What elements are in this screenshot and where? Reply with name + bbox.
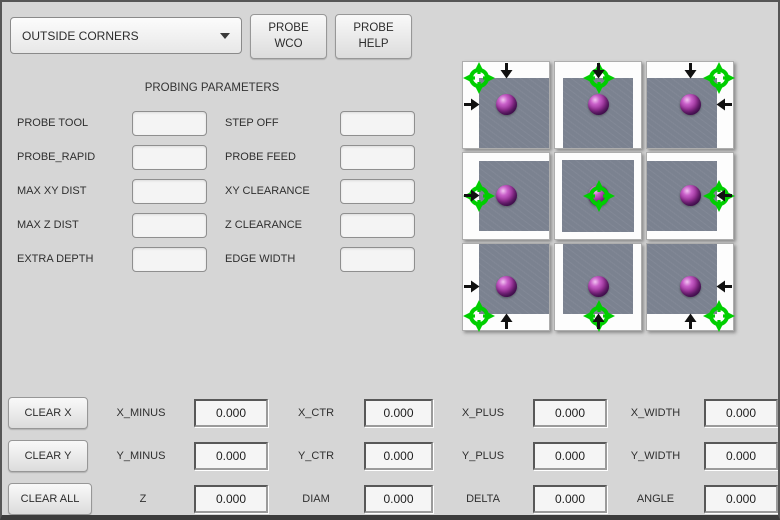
probe-direction-bottom-left-button[interactable] — [462, 243, 550, 331]
param-input-z-clearance[interactable] — [340, 213, 415, 238]
target-crosshair-icon — [463, 62, 495, 94]
result-value-y-width: 0.000 — [704, 442, 778, 470]
arrow-right-icon — [464, 280, 480, 293]
probe-tip-sphere-icon — [588, 276, 609, 297]
probe-mode-dropdown[interactable]: OUTSIDE CORNERS — [10, 17, 242, 54]
probe-tip-sphere-icon — [680, 94, 701, 115]
param-label-max-z-dist: MAX Z DIST — [17, 219, 132, 231]
param-row: MAX Z DISTZ CLEARANCE — [2, 208, 422, 242]
probe-tip-sphere-icon — [496, 185, 517, 206]
result-value-x-plus: 0.000 — [533, 399, 607, 427]
result-value-angle: 0.000 — [704, 485, 778, 513]
target-crosshair-icon — [703, 300, 735, 332]
clear-x-button[interactable]: CLEAR X — [8, 397, 88, 429]
param-row: MAX XY DISTXY CLEARANCE — [2, 174, 422, 208]
arrow-up-icon — [684, 313, 697, 329]
result-label-delta: DELTA — [433, 493, 533, 505]
result-label-x-plus: X_PLUS — [433, 407, 533, 419]
dropdown-arrow-icon — [220, 33, 230, 39]
probe-direction-bottom-right-button[interactable] — [646, 243, 734, 331]
param-input-max-xy-dist[interactable] — [132, 179, 207, 204]
param-row: EXTRA DEPTHEDGE WIDTH — [2, 242, 422, 276]
result-label-y-minus: Y_MINUS — [88, 450, 194, 462]
probe-direction-top-center-button[interactable] — [554, 61, 642, 149]
probe-wco-label-line2: WCO — [274, 37, 302, 53]
target-crosshair-icon — [463, 300, 495, 332]
param-input-edge-width[interactable] — [340, 247, 415, 272]
arrow-down-icon — [500, 63, 513, 79]
probe-direction-middle-left-button[interactable] — [462, 152, 550, 240]
param-label-xy-clearance: XY CLEARANCE — [225, 185, 340, 197]
probe-screen-window: OUTSIDE CORNERS PROBE WCO PROBE HELP PRO… — [0, 0, 780, 520]
results-row-1: CLEAR XX_MINUS0.000X_CTR0.000X_PLUS0.000… — [2, 396, 778, 430]
result-label-diam: DIAM — [268, 493, 364, 505]
param-label-z-clearance: Z CLEARANCE — [225, 219, 340, 231]
probe-help-label-line1: PROBE — [353, 21, 393, 37]
param-label-edge-width: EDGE WIDTH — [225, 253, 340, 265]
result-value-y-ctr: 0.000 — [364, 442, 433, 470]
param-label-probe-feed: PROBE FEED — [225, 151, 340, 163]
param-row: PROBE TOOLSTEP OFF — [2, 106, 422, 140]
probe-mode-selected-value: OUTSIDE CORNERS — [22, 29, 139, 43]
probe-position-grid — [462, 61, 734, 331]
probe-wco-label-line1: PROBE — [268, 21, 308, 37]
arrow-up-icon — [500, 313, 513, 329]
param-label-step-off: STEP OFF — [225, 117, 340, 129]
arrow-left-icon — [716, 189, 732, 202]
probe-direction-bottom-center-button[interactable] — [554, 243, 642, 331]
probing-parameters-title: PROBING PARAMETERS — [2, 82, 422, 94]
result-value-y-plus: 0.000 — [533, 442, 607, 470]
arrow-right-icon — [464, 98, 480, 111]
arrow-left-icon — [716, 98, 732, 111]
probe-direction-middle-right-button[interactable] — [646, 152, 734, 240]
result-label-y-plus: Y_PLUS — [433, 450, 533, 462]
probe-tip-sphere-icon — [496, 276, 517, 297]
arrow-down-icon — [592, 63, 605, 79]
arrow-down-icon — [684, 63, 697, 79]
probing-parameters-form: PROBE TOOLSTEP OFFPROBE_RAPIDPROBE FEEDM… — [2, 106, 422, 276]
param-label-max-xy-dist: MAX XY DIST — [17, 185, 132, 197]
param-label-extra-depth: EXTRA DEPTH — [17, 253, 132, 265]
param-input-probe-rapid[interactable] — [132, 145, 207, 170]
probe-direction-center-button[interactable] — [554, 152, 642, 240]
param-input-probe-feed[interactable] — [340, 145, 415, 170]
param-label-probe-rapid: PROBE_RAPID — [17, 151, 132, 163]
result-value-delta: 0.000 — [533, 485, 607, 513]
result-label-angle: ANGLE — [607, 493, 704, 505]
probe-wco-button[interactable]: PROBE WCO — [250, 14, 327, 59]
probe-help-label-line2: HELP — [358, 37, 388, 53]
result-value-x-minus: 0.000 — [194, 399, 268, 427]
param-input-max-z-dist[interactable] — [132, 213, 207, 238]
param-input-extra-depth[interactable] — [132, 247, 207, 272]
param-input-xy-clearance[interactable] — [340, 179, 415, 204]
result-label-x-ctr: X_CTR — [268, 407, 364, 419]
results-row-2: CLEAR YY_MINUS0.000Y_CTR0.000Y_PLUS0.000… — [2, 439, 778, 473]
result-value-y-minus: 0.000 — [194, 442, 268, 470]
result-value-x-ctr: 0.000 — [364, 399, 433, 427]
param-input-step-off[interactable] — [340, 111, 415, 136]
probe-tip-sphere-icon — [680, 276, 701, 297]
target-crosshair-icon — [583, 180, 615, 212]
param-label-probe-tool: PROBE TOOL — [17, 117, 132, 129]
probe-tip-sphere-icon — [496, 94, 517, 115]
result-value-z: 0.000 — [194, 485, 268, 513]
probe-tip-sphere-icon — [588, 94, 609, 115]
result-label-y-ctr: Y_CTR — [268, 450, 364, 462]
arrow-left-icon — [716, 280, 732, 293]
result-value-diam: 0.000 — [364, 485, 433, 513]
result-label-z: Z — [92, 493, 194, 505]
result-label-y-width: Y_WIDTH — [607, 450, 704, 462]
results-row-3: CLEAR ALLZ0.000DIAM0.000DELTA0.000ANGLE0… — [2, 482, 778, 516]
result-label-x-minus: X_MINUS — [88, 407, 194, 419]
result-label-x-width: X_WIDTH — [607, 407, 704, 419]
param-row: PROBE_RAPIDPROBE FEED — [2, 140, 422, 174]
probe-tip-sphere-icon — [680, 185, 701, 206]
target-crosshair-icon — [703, 62, 735, 94]
probe-help-button[interactable]: PROBE HELP — [335, 14, 412, 59]
clear-all-button[interactable]: CLEAR ALL — [8, 483, 92, 515]
result-value-x-width: 0.000 — [704, 399, 778, 427]
param-input-probe-tool[interactable] — [132, 111, 207, 136]
probe-direction-top-left-button[interactable] — [462, 61, 550, 149]
probe-direction-top-right-button[interactable] — [646, 61, 734, 149]
arrow-up-icon — [592, 313, 605, 329]
arrow-right-icon — [464, 189, 480, 202]
clear-y-button[interactable]: CLEAR Y — [8, 440, 88, 472]
